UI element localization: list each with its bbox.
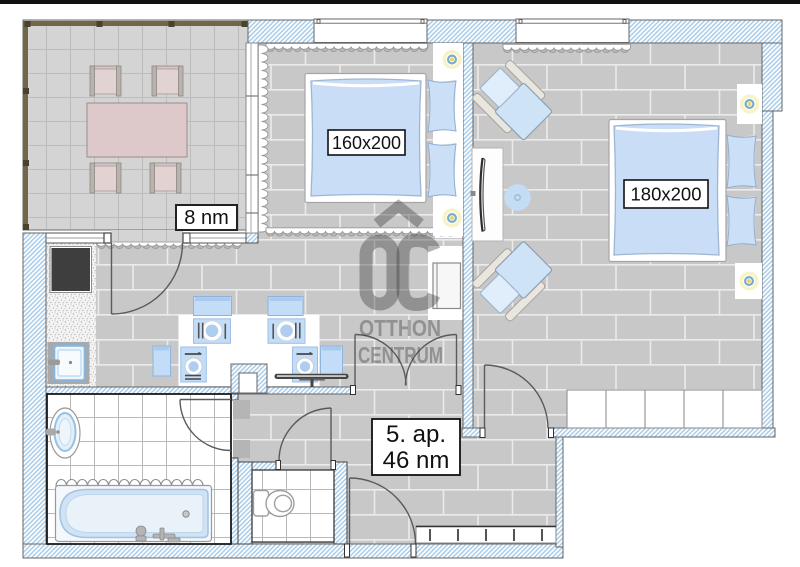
- svg-text:5. ap.: 5. ap.: [386, 421, 446, 448]
- svg-text:CENTRUM: CENTRUM: [358, 342, 443, 368]
- svg-text:OTTHON: OTTHON: [359, 315, 441, 341]
- svg-text:46 nm: 46 nm: [383, 447, 450, 474]
- svg-text:160x200: 160x200: [332, 133, 401, 153]
- svg-text:8 nm: 8 nm: [184, 207, 228, 229]
- svg-text:180x200: 180x200: [631, 184, 702, 205]
